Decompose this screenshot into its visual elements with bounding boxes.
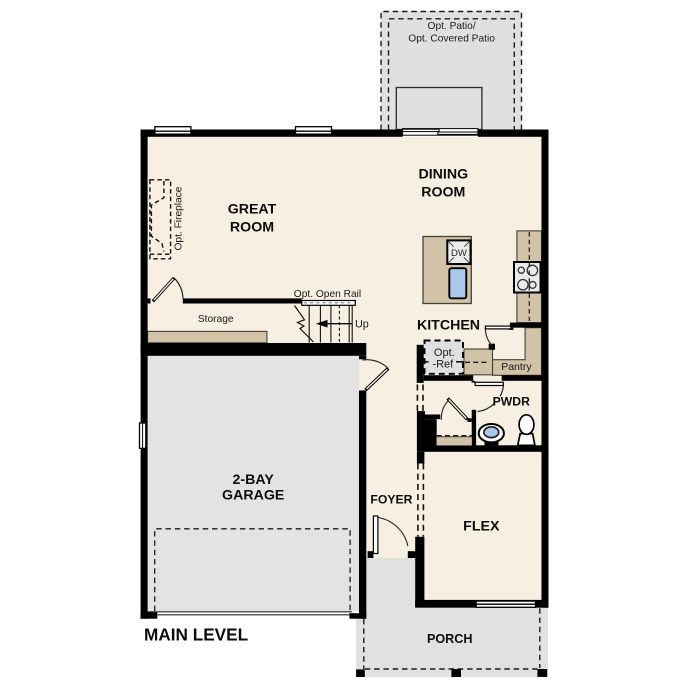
svg-text:DINING: DINING: [418, 167, 468, 183]
svg-text:2-BAY: 2-BAY: [233, 472, 275, 488]
svg-text:ROOM: ROOM: [421, 184, 465, 200]
svg-text:GARAGE: GARAGE: [222, 487, 284, 503]
svg-text:Storage: Storage: [198, 314, 234, 325]
svg-text:GREAT: GREAT: [228, 202, 277, 218]
svg-text:Opt. Patio/: Opt. Patio/: [428, 21, 476, 32]
svg-text:Opt. Covered Patio: Opt. Covered Patio: [408, 34, 495, 45]
svg-text:Opt. Open Rail: Opt. Open Rail: [294, 289, 361, 300]
svg-text:Opt. Fireplace: Opt. Fireplace: [173, 186, 184, 250]
svg-text:DW: DW: [451, 248, 467, 259]
svg-text:FLEX: FLEX: [463, 519, 500, 535]
svg-text:MAIN LEVEL: MAIN LEVEL: [144, 624, 248, 644]
svg-text:Opt.: Opt.: [434, 347, 455, 359]
svg-text:ROOM: ROOM: [230, 220, 274, 236]
svg-text:PWDR: PWDR: [493, 395, 530, 409]
svg-text:KITCHEN: KITCHEN: [417, 318, 480, 334]
svg-text:PORCH: PORCH: [427, 632, 472, 646]
svg-text:Pantry: Pantry: [501, 361, 532, 373]
svg-text:-Ref: -Ref: [432, 359, 454, 371]
svg-text:FOYER: FOYER: [370, 492, 412, 506]
svg-text:Up: Up: [355, 319, 369, 331]
